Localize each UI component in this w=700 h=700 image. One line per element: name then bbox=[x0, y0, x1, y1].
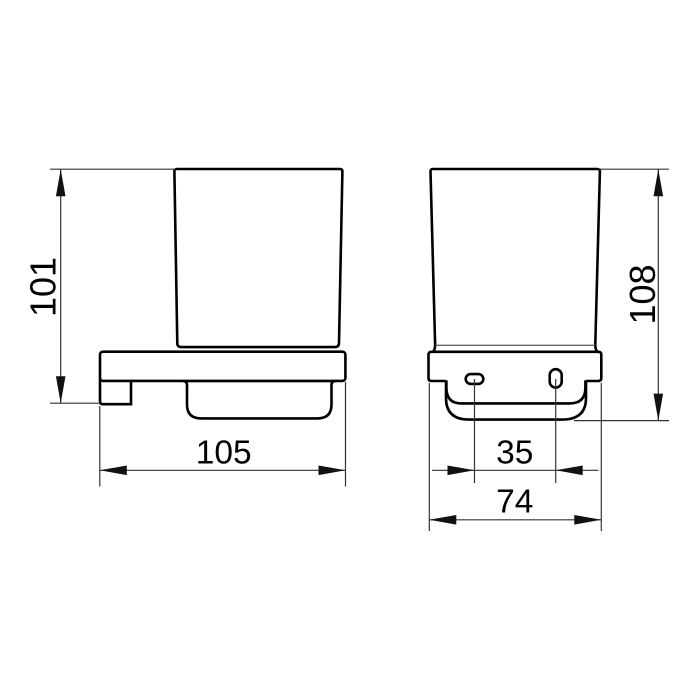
svg-text:101: 101 bbox=[23, 257, 64, 317]
svg-text:74: 74 bbox=[496, 484, 533, 521]
svg-text:105: 105 bbox=[196, 435, 252, 472]
svg-text:35: 35 bbox=[496, 435, 533, 472]
svg-text:108: 108 bbox=[622, 264, 663, 324]
